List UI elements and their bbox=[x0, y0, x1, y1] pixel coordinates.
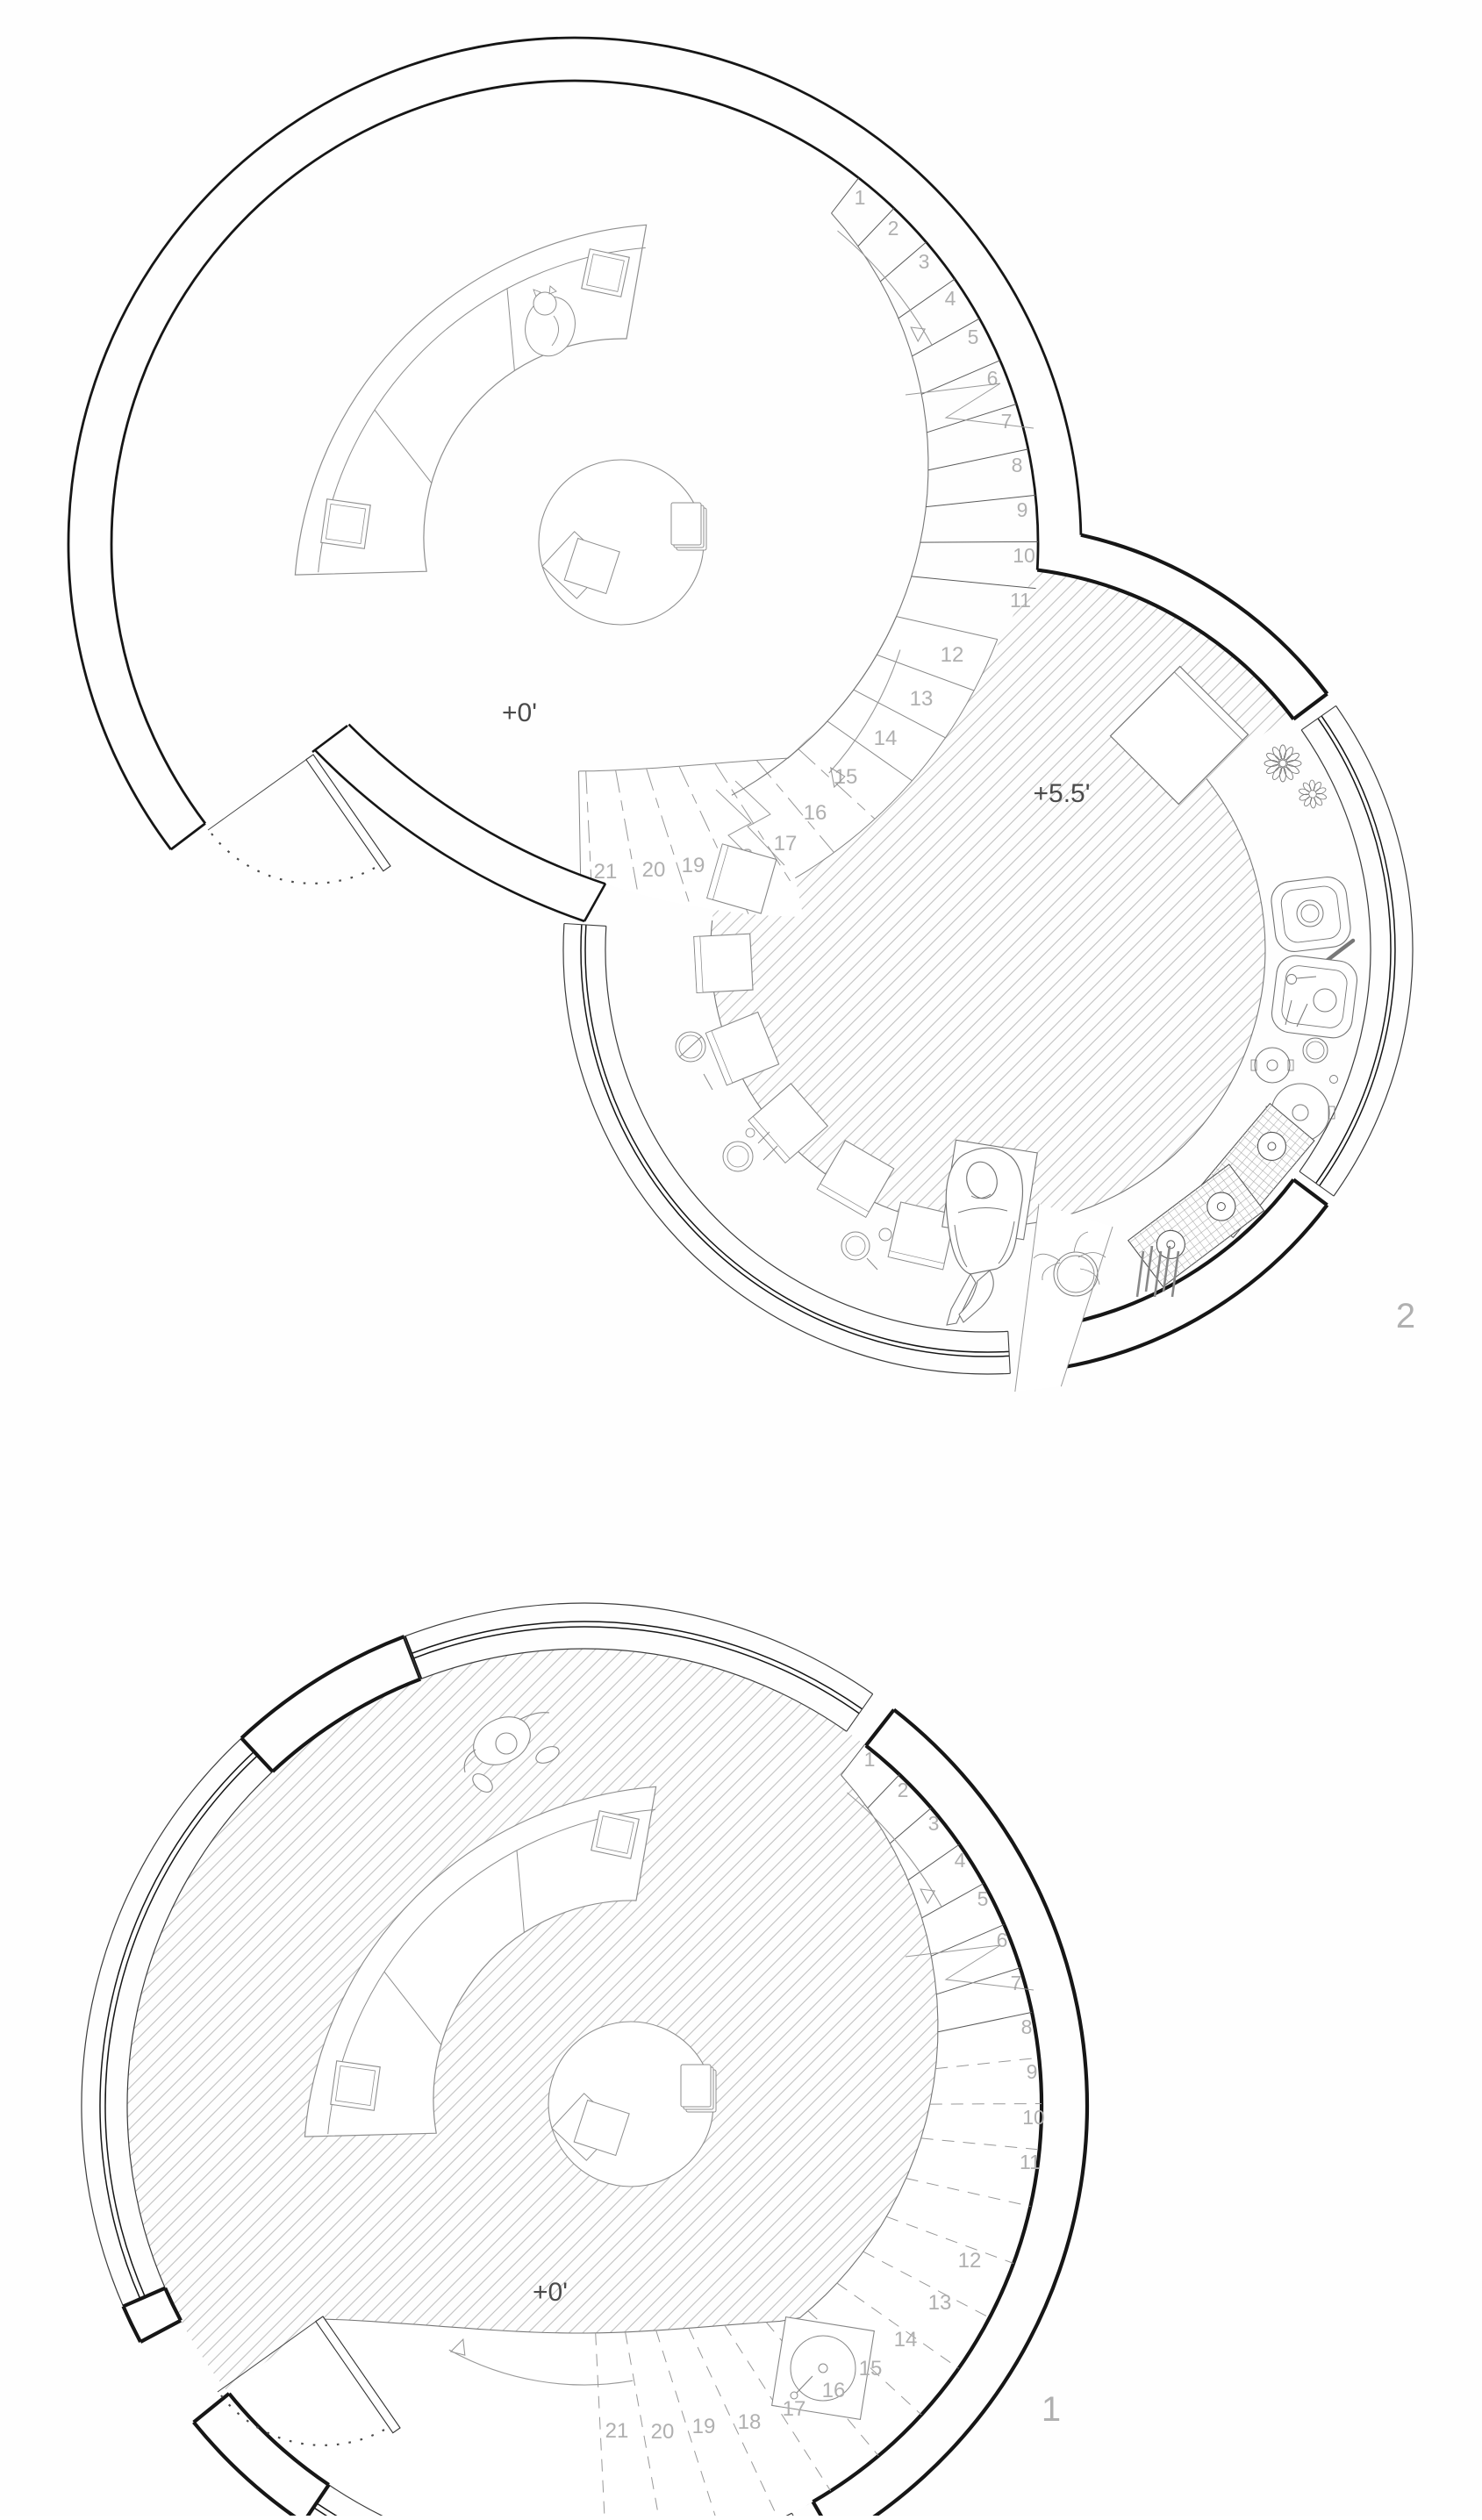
svg-text:15: 15 bbox=[834, 765, 858, 789]
svg-text:16: 16 bbox=[804, 801, 827, 825]
svg-text:7: 7 bbox=[1011, 1972, 1022, 1994]
svg-text:13: 13 bbox=[928, 2291, 952, 2315]
svg-text:9: 9 bbox=[1027, 2060, 1038, 2083]
svg-text:11: 11 bbox=[1010, 589, 1031, 612]
svg-text:8: 8 bbox=[1012, 454, 1023, 476]
svg-text:5: 5 bbox=[968, 326, 979, 348]
svg-text:20: 20 bbox=[642, 858, 666, 882]
svg-text:11: 11 bbox=[1020, 2151, 1041, 2173]
svg-text:12: 12 bbox=[941, 643, 964, 667]
svg-text:2: 2 bbox=[1396, 1297, 1415, 1335]
svg-text:3: 3 bbox=[928, 1812, 940, 1835]
svg-text:7: 7 bbox=[1001, 410, 1013, 433]
svg-text:4: 4 bbox=[945, 287, 956, 310]
svg-text:+5.5': +5.5' bbox=[1034, 779, 1091, 808]
svg-text:12: 12 bbox=[958, 2249, 982, 2273]
svg-text:20: 20 bbox=[651, 2420, 675, 2444]
svg-text:+0': +0' bbox=[502, 698, 537, 727]
svg-text:1: 1 bbox=[1042, 2390, 1061, 2429]
svg-text:10: 10 bbox=[1013, 544, 1035, 567]
svg-text:14: 14 bbox=[894, 2328, 918, 2352]
svg-text:+0': +0' bbox=[533, 2278, 568, 2307]
svg-text:9: 9 bbox=[1017, 498, 1028, 521]
svg-text:8: 8 bbox=[1021, 2015, 1033, 2038]
svg-text:3: 3 bbox=[919, 250, 930, 273]
svg-text:4: 4 bbox=[955, 1849, 966, 1872]
svg-text:19: 19 bbox=[682, 854, 705, 877]
svg-text:13: 13 bbox=[910, 687, 934, 711]
svg-text:6: 6 bbox=[997, 1929, 1008, 1951]
svg-text:16: 16 bbox=[822, 2379, 846, 2402]
svg-text:1: 1 bbox=[864, 1748, 876, 1771]
svg-text:5: 5 bbox=[977, 1887, 989, 1910]
svg-text:14: 14 bbox=[874, 727, 898, 750]
svg-text:10: 10 bbox=[1022, 2106, 1045, 2129]
svg-text:2: 2 bbox=[898, 1779, 909, 1801]
svg-text:1: 1 bbox=[855, 186, 866, 209]
svg-text:17: 17 bbox=[783, 2397, 806, 2421]
svg-text:18: 18 bbox=[738, 2410, 762, 2434]
svg-text:21: 21 bbox=[605, 2419, 629, 2443]
svg-text:17: 17 bbox=[774, 832, 798, 856]
svg-text:2: 2 bbox=[888, 217, 899, 240]
svg-text:19: 19 bbox=[692, 2415, 716, 2438]
svg-text:15: 15 bbox=[859, 2357, 883, 2380]
